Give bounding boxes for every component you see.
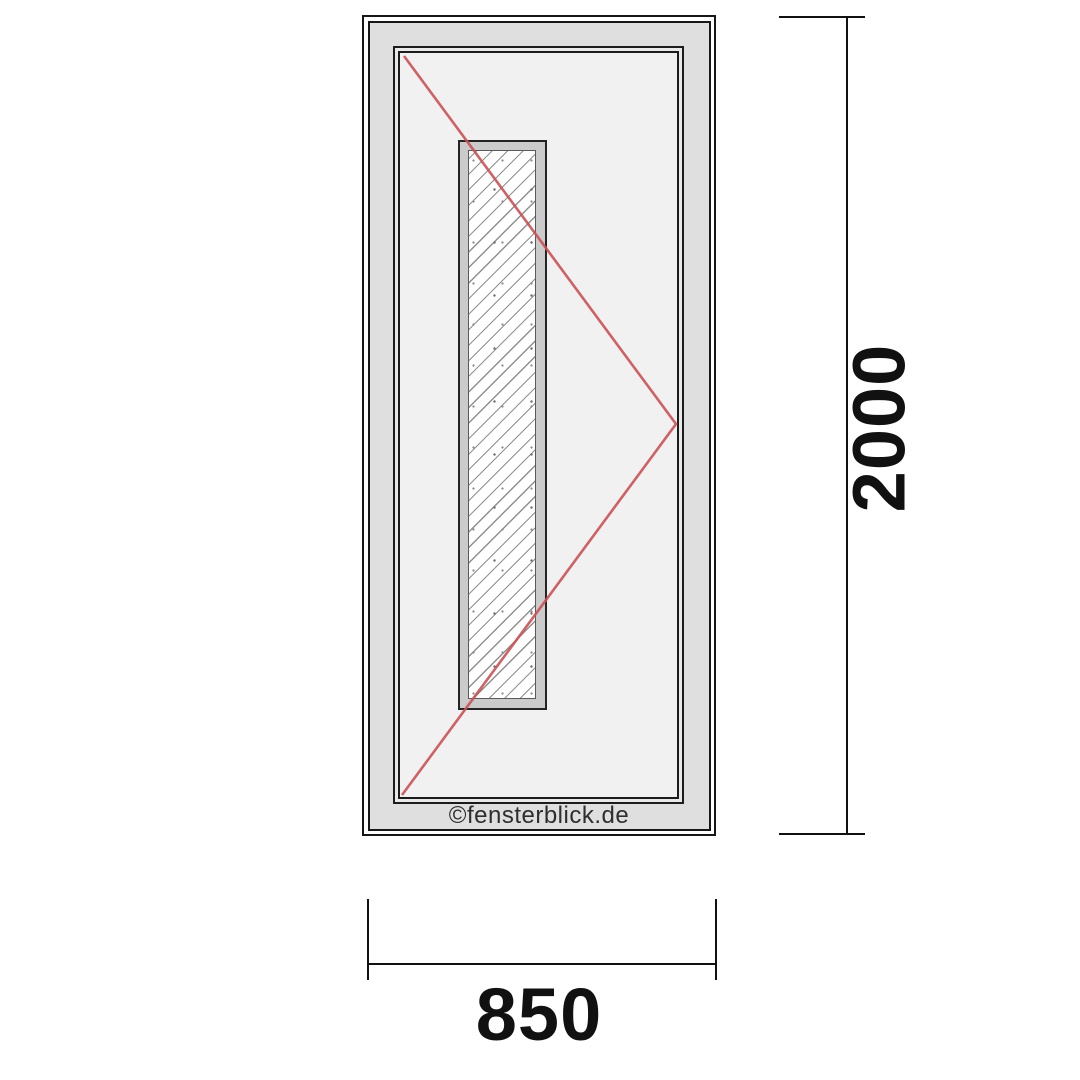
height-dimension-label: 2000 <box>837 344 922 513</box>
width-dimension-line <box>368 963 716 965</box>
glass-panel-hatched <box>468 150 536 699</box>
door-diagram-canvas: ©fensterblick.de 2000 850 <box>0 0 1080 1080</box>
height-dimension-tick-bottom <box>779 833 865 835</box>
width-dimension-tick-right <box>715 899 717 980</box>
width-dimension-label: 850 <box>362 972 716 1057</box>
height-dimension-tick-top <box>779 16 865 18</box>
watermark-text: ©fensterblick.de <box>362 803 716 829</box>
width-dimension-tick-left <box>367 899 369 980</box>
